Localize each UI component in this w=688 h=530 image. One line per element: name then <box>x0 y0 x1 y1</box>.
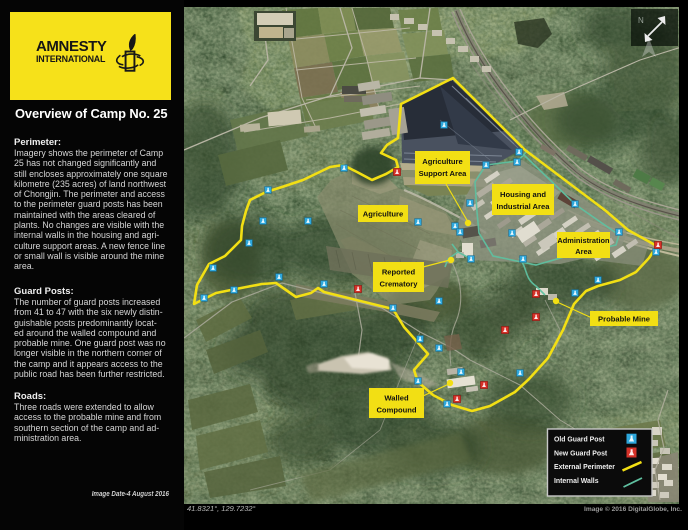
svg-text:Compound: Compound <box>376 406 416 415</box>
svg-text:Industrial Area: Industrial Area <box>497 202 551 211</box>
svg-text:Old Guard Post: Old Guard Post <box>554 437 605 444</box>
svg-text:N: N <box>638 16 644 25</box>
svg-text:Agriculture: Agriculture <box>363 210 404 219</box>
svg-text:Area: Area <box>575 247 592 256</box>
svg-text:Probable Mine: Probable Mine <box>598 315 650 324</box>
svg-text:Agriculture: Agriculture <box>422 157 463 166</box>
svg-text:Support Area: Support Area <box>419 169 468 178</box>
svg-text:Reported: Reported <box>382 268 416 277</box>
svg-text:Walled: Walled <box>384 394 409 403</box>
svg-text:Internal Walls: Internal Walls <box>554 478 599 485</box>
svg-text:External Perimeter: External Perimeter <box>554 464 615 471</box>
svg-text:Crematory: Crematory <box>380 280 419 289</box>
svg-text:Administration: Administration <box>557 236 610 245</box>
svg-text:Housing and: Housing and <box>500 190 546 199</box>
svg-text:New Guard Post: New Guard Post <box>554 450 608 457</box>
